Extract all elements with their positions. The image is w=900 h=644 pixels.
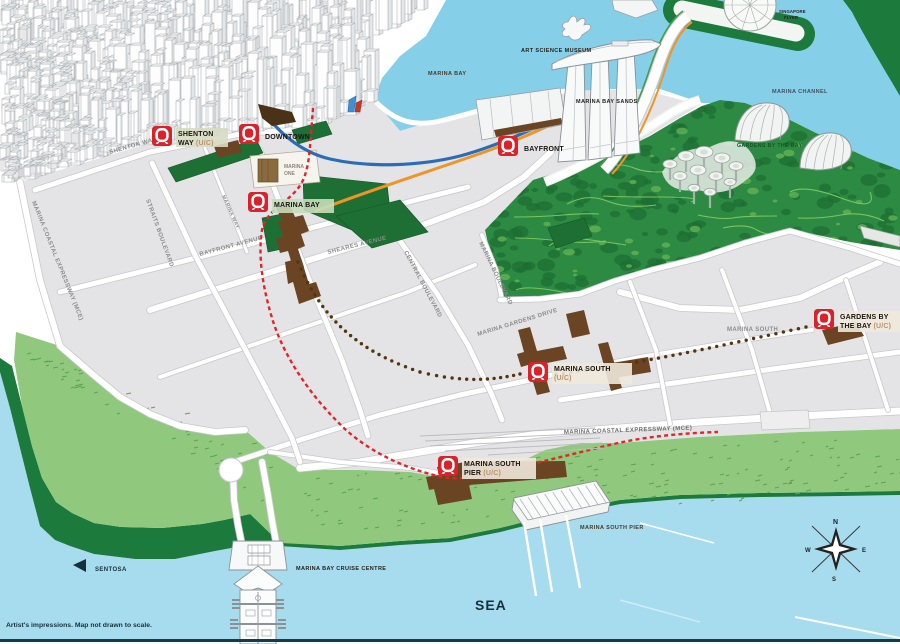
svg-text:MARINA: MARINA bbox=[284, 164, 304, 170]
svg-text:BAYFRONT: BAYFRONT bbox=[524, 146, 564, 153]
svg-text:S: S bbox=[832, 577, 836, 583]
svg-text:MARINA SOUTH: MARINA SOUTH bbox=[554, 366, 611, 373]
svg-text:(U/C): (U/C) bbox=[554, 375, 572, 382]
svg-text:MARINA BAY: MARINA BAY bbox=[428, 71, 466, 77]
svg-text:SINGAPORE: SINGAPORE bbox=[779, 9, 806, 14]
svg-text:MARINA CHANNEL: MARINA CHANNEL bbox=[772, 89, 828, 95]
svg-text:SHENTON: SHENTON bbox=[178, 131, 214, 138]
svg-text:SEA: SEA bbox=[475, 597, 507, 613]
svg-text:GARDENS BY: GARDENS BY bbox=[840, 314, 889, 321]
svg-text:MARINA BAY: MARINA BAY bbox=[274, 202, 320, 209]
svg-text:MARINA BAY CRUISE CENTRE: MARINA BAY CRUISE CENTRE bbox=[296, 566, 386, 572]
svg-text:MARINA SOUTH: MARINA SOUTH bbox=[464, 461, 521, 468]
svg-text:MARINA SOUTH PIER: MARINA SOUTH PIER bbox=[580, 525, 644, 531]
svg-text:SENTOSA: SENTOSA bbox=[95, 567, 127, 573]
svg-text:FLYER: FLYER bbox=[784, 15, 799, 20]
svg-text:W: W bbox=[805, 548, 811, 554]
svg-text:ART SCIENCE MUSEUM: ART SCIENCE MUSEUM bbox=[521, 48, 591, 54]
svg-text:WAY (U/C): WAY (U/C) bbox=[178, 140, 214, 147]
svg-text:DOWNTOWN: DOWNTOWN bbox=[265, 134, 310, 141]
svg-text:PIER (U/C): PIER (U/C) bbox=[464, 470, 501, 477]
svg-text:THE BAY (U/C): THE BAY (U/C) bbox=[840, 323, 891, 330]
svg-text:ONE: ONE bbox=[284, 171, 296, 177]
svg-text:N: N bbox=[833, 519, 838, 526]
svg-text:GARDENS BY THE BAY: GARDENS BY THE BAY bbox=[737, 143, 803, 149]
svg-text:MARINA SOUTH: MARINA SOUTH bbox=[727, 327, 778, 333]
svg-text:Artist's impressions. Map not: Artist's impressions. Map not drawn to s… bbox=[6, 622, 152, 629]
svg-text:E: E bbox=[862, 548, 866, 554]
svg-text:MARINA BAY SANDS: MARINA BAY SANDS bbox=[576, 99, 638, 105]
